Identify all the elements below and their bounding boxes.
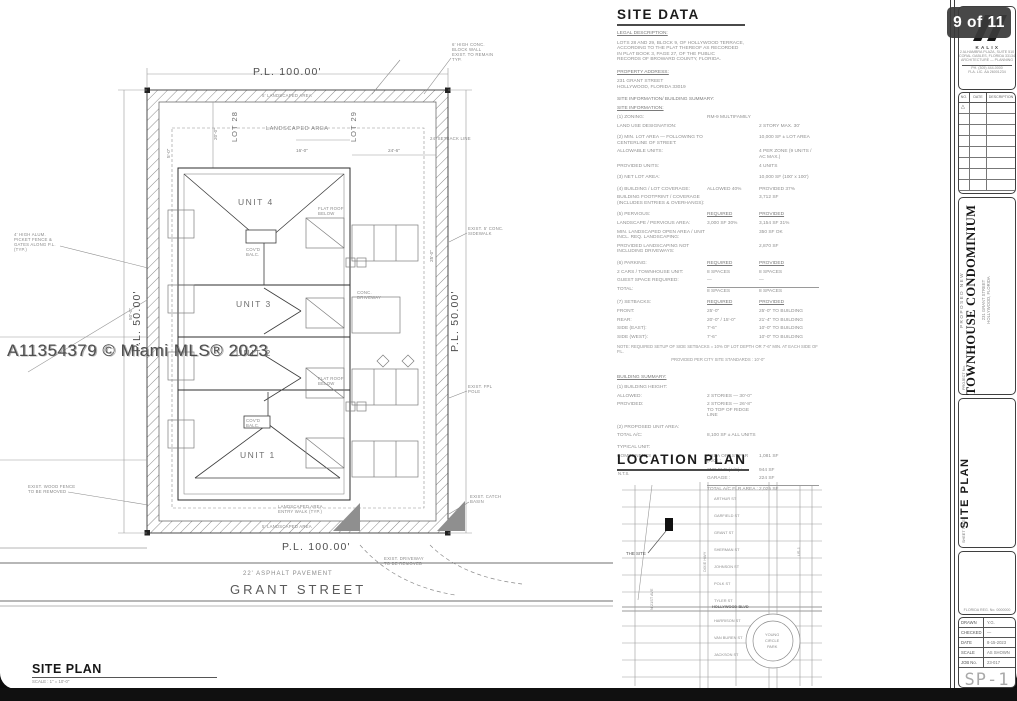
map-vertical-street-label: US-1 bbox=[796, 547, 801, 556]
firm-address-line: ARCHITECTURE — PLANNING bbox=[959, 58, 1015, 62]
issue-key: CHECKED bbox=[959, 628, 984, 637]
plan-annotation: COV'DBALC. bbox=[246, 247, 260, 257]
revision-row bbox=[959, 136, 1015, 147]
sheet-title-box: SITE PLAN SHEET TITLE bbox=[958, 398, 1016, 548]
sheet-title-text: SITE PLAN bbox=[959, 419, 971, 567]
project-tab-label: PROJECT No. bbox=[962, 365, 966, 390]
plan-annotation: EXIST. 5' CONC.SIDEWALK bbox=[468, 226, 504, 236]
map-street-label: JOHNSON ST bbox=[714, 564, 739, 569]
plan-annotation: EXIST. WOOD FENCETO BE REMOVED bbox=[28, 484, 75, 494]
project-title: TOWNHOUSE CONDOMINIUM bbox=[964, 202, 979, 398]
site-leader bbox=[648, 531, 666, 553]
revision-row bbox=[959, 169, 1015, 180]
revision-row bbox=[959, 103, 1015, 114]
issue-key: JOB No. bbox=[959, 658, 984, 667]
issue-table-row: SCALEAS SHOWN bbox=[959, 648, 1015, 658]
issue-table-row: DATE8-15-2023 bbox=[959, 638, 1015, 648]
circle-label-1: YOUNG bbox=[765, 632, 779, 637]
plan-dimension: 50'-0" bbox=[128, 308, 133, 320]
issue-key: SCALE bbox=[959, 648, 984, 657]
plan-annotation: COV'DBALC. bbox=[246, 418, 260, 428]
plan-annotation: EXIST. CATCHBASIN bbox=[470, 494, 501, 504]
issue-value: Y.G. bbox=[984, 618, 1015, 627]
plan-annotation: LANDSCAPED AREAENTRY WALK (TYP.) bbox=[278, 504, 323, 514]
mls-watermark: A11354379 © Miami MLS® 2023 bbox=[7, 341, 268, 361]
drawing-sheet: P.L. 100.00' P.L. 100.00' P.L. 50.00' P.… bbox=[0, 0, 1017, 689]
issue-table-row: CHECKED— bbox=[959, 628, 1015, 638]
rev-delta-icon: △ bbox=[961, 104, 965, 110]
issue-box: DRAWNY.G.CHECKED—DATE8-15-2023SCALEAS SH… bbox=[958, 617, 1016, 688]
map-street-label: VAN BUREN ST bbox=[714, 635, 742, 640]
seal-note: FLORIDA REG. No. 0000000 bbox=[959, 608, 1015, 612]
map-street-label: JACKSON ST bbox=[714, 652, 738, 657]
plan-dimension: 24'-6" bbox=[388, 148, 400, 153]
issue-key: DATE bbox=[959, 638, 984, 647]
the-site-label: THE SITE bbox=[626, 551, 646, 556]
revision-row bbox=[959, 180, 1015, 191]
plan-annotation: 6' HIGH CONC.BLOCK WALLEXIST. TO REMAINT… bbox=[452, 42, 493, 62]
issue-table-row: JOB No.23-017 bbox=[959, 658, 1015, 668]
issue-table-row: DRAWNY.G. bbox=[959, 618, 1015, 628]
page-counter-badge: 9 of 11 bbox=[947, 7, 1011, 38]
revision-row bbox=[959, 114, 1015, 125]
map-street-label: POLK ST bbox=[714, 581, 730, 586]
sheet-number: SP-1 bbox=[959, 670, 1015, 690]
rev-col-date: DATE bbox=[970, 93, 987, 102]
site-marker bbox=[665, 518, 673, 531]
revision-rows bbox=[959, 103, 1015, 191]
revision-row bbox=[959, 125, 1015, 136]
project-address-2: HOLLYWOOD, FLORIDA bbox=[986, 202, 991, 398]
bottom-bar bbox=[0, 688, 1017, 701]
plan-annotation: FLAT ROOFBELOW bbox=[318, 376, 344, 386]
map-street-label: HOLLYWOOD BLVD bbox=[712, 604, 749, 609]
plan-annotation: FLAT ROOFBELOW bbox=[318, 206, 344, 216]
map-vertical-street-label: DIXIE HWY bbox=[702, 552, 707, 572]
issue-value: 23-017 bbox=[984, 658, 1015, 667]
plan-dimension: 20'-0" bbox=[213, 128, 218, 140]
plan-annotation: 24' SETBACK LINE bbox=[430, 136, 471, 141]
firm-license: FLA. LIC. AA 26001234 bbox=[959, 70, 1015, 74]
revision-row bbox=[959, 158, 1015, 169]
sheet-title-tab: SHEET TITLE bbox=[962, 519, 966, 543]
map-street-label: SHERMAN ST bbox=[714, 547, 740, 552]
seal-box: FLORIDA REG. No. 0000000 bbox=[958, 551, 1016, 615]
map-street-label: GRANT ST bbox=[714, 530, 734, 535]
issue-value: — bbox=[984, 628, 1015, 637]
revision-box: NO. DATE DESCRIPTION △ bbox=[958, 92, 1016, 194]
plan-dimension: 25'-0" bbox=[429, 250, 434, 262]
map-vertical-street-label: N 21ST AVE bbox=[649, 589, 654, 610]
sheet-border-inner bbox=[954, 0, 955, 688]
issue-table: DRAWNY.G.CHECKED—DATE8-15-2023SCALEAS SH… bbox=[959, 618, 1015, 668]
project-box: PROPOSED NEW TOWNHOUSE CONDOMINIUM 231 G… bbox=[958, 197, 1016, 395]
circle-label-3: PARK bbox=[767, 644, 777, 649]
plan-annotation: 4' HIGH ALUM.PICKET FENCE &GATES ALONG P… bbox=[14, 232, 56, 252]
revision-row bbox=[959, 147, 1015, 158]
map-street-label: TYLER ST bbox=[714, 598, 733, 603]
rev-col-desc: DESCRIPTION bbox=[987, 93, 1015, 102]
issue-value: 8-15-2023 bbox=[984, 638, 1015, 647]
issue-key: DRAWN bbox=[959, 618, 984, 627]
plan-annotation: EXIST. FPLPOLE bbox=[468, 384, 492, 394]
firm-address: 2 ALHAMBRA PLAZA, SUITE 510CORAL GABLES,… bbox=[959, 50, 1015, 63]
map-street-label: GARFIELD ST bbox=[714, 513, 740, 518]
map-street-label: HARRISON ST bbox=[714, 618, 741, 623]
plan-annotation: CONC.DRIVEWAY bbox=[357, 290, 381, 300]
rev-col-no: NO. bbox=[959, 93, 970, 102]
screenshot-stage: P.L. 100.00' P.L. 100.00' P.L. 50.00' P.… bbox=[0, 0, 1017, 701]
plan-annotation: EXIST. DRIVEWAYTO BE REMOVED bbox=[384, 556, 424, 566]
sheet-border-outer bbox=[950, 0, 951, 688]
issue-value: AS SHOWN bbox=[984, 648, 1015, 657]
map-street-label: ARTHUR ST bbox=[714, 496, 736, 501]
circle-label-2: CIRCLE bbox=[765, 638, 779, 643]
plan-dimension: 5'-0" bbox=[166, 149, 171, 158]
plan-dimension: 16'-0" bbox=[296, 148, 308, 153]
